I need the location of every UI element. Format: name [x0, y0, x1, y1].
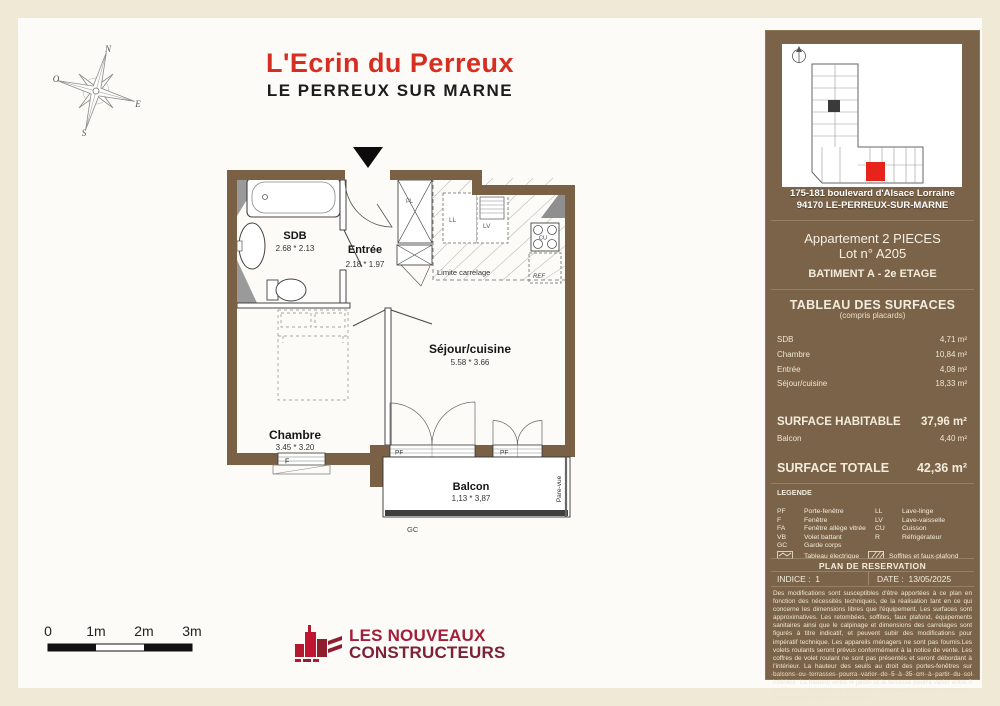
date-value: 13/05/2025: [909, 574, 952, 584]
divider: [771, 558, 974, 559]
surface-row: Entrée4,08 m²: [777, 365, 967, 374]
compass-s-label: S: [82, 128, 87, 138]
compass-rose-icon: N O E S: [45, 35, 155, 145]
bed-outline: [278, 310, 348, 400]
bathtub: [247, 178, 340, 217]
title-block: L'Ecrin du Perreux LE PERREUX SUR MARNE: [240, 48, 540, 101]
date-label: DATE :: [877, 574, 904, 584]
scale-2m-label: 2m: [134, 623, 153, 639]
logo-line1: LES NOUVEAUX: [349, 627, 506, 644]
porte-fenetres: [390, 402, 542, 457]
surfaces-title: TABLEAU DES SURFACES: [765, 298, 980, 312]
habitable-value: 37,96 m²: [921, 416, 967, 428]
entrance-arrow-icon: [353, 147, 383, 168]
entree-room-label: Entrée: [348, 244, 382, 256]
indice-row: INDICE : 1: [777, 574, 820, 584]
surfaces-subtitle: (compris placards): [765, 311, 980, 320]
row-value: 18,33 m²: [935, 379, 967, 388]
scale-1m-label: 1m: [86, 623, 105, 639]
scale-0-label: 0: [44, 623, 52, 639]
indice-label: INDICE :: [777, 574, 811, 584]
builder-logo-text: LES NOUVEAUX CONSTRUCTEURS: [349, 627, 506, 661]
plan-reservation-title: PLAN DE RESERVATION: [765, 561, 980, 571]
divider: [771, 220, 974, 221]
toilet-bowl: [276, 279, 306, 301]
builder-logo: LES NOUVEAUX CONSTRUCTEURS: [293, 622, 523, 666]
apartment-type: Appartement 2 PIECES: [765, 231, 980, 246]
sdb-room-label: SDB: [283, 230, 306, 242]
legend-abbr: R: [875, 534, 902, 541]
window-f-label: F: [285, 459, 289, 466]
surface-row: Chambre10,84 m²: [777, 350, 967, 359]
divider: [771, 674, 974, 675]
mini-north-icon: [793, 46, 806, 63]
balcon-label: Balcon: [777, 434, 801, 443]
logo-line2: CONSTRUCTEURS: [349, 644, 506, 661]
compass-e-label: E: [134, 99, 141, 109]
entrance-door-arc: [345, 180, 392, 227]
pf1-label: PF: [395, 450, 403, 457]
row-label: Entrée: [777, 365, 801, 374]
row-value: 4,71 m²: [940, 335, 967, 344]
cu-label: CU: [539, 236, 547, 242]
surface-totale-row: SURFACE TOTALE42,36 m²: [777, 461, 967, 475]
divider: [771, 586, 974, 587]
legend-title: LEGENDE: [777, 488, 812, 497]
totale-value: 42,36 m²: [917, 461, 967, 475]
scale-bar: 0 1m 2m 3m: [40, 620, 210, 662]
balcon-room-label: Balcon: [453, 481, 490, 493]
address-line1: 175-181 boulevard d'Alsace Lorraine: [765, 188, 980, 200]
compass-n-label: N: [104, 44, 112, 54]
sdb-room-dims: 2.68 * 2.13: [276, 244, 315, 253]
sejour-room-dims: 5.58 * 3.66: [451, 358, 490, 367]
info-sidebar: 175-181 boulevard d'Alsace Lorraine 9417…: [765, 30, 980, 680]
floor-plan: PL LL LV CU REF Limite carrelage: [225, 140, 575, 538]
builder-logo-icon: [293, 622, 343, 666]
row-label: SDB: [777, 335, 793, 344]
pf2-label: PF: [500, 450, 508, 457]
partitions: [237, 180, 391, 445]
divider: [771, 571, 974, 572]
pl-label: PL: [406, 199, 414, 205]
lv-label: LV: [483, 223, 491, 230]
legend-label: Réfrigérateur: [902, 534, 942, 541]
divider: [771, 289, 974, 290]
surface-habitable-row: SURFACE HABITABLE37,96 m²: [777, 416, 967, 428]
lot-number: Lot n° A205: [765, 246, 980, 261]
divider: [771, 483, 974, 484]
indice-value: 1: [815, 574, 820, 584]
building-floor: BATIMENT A - 2e ETAGE: [765, 268, 980, 280]
date-row: DATE : 13/05/2025: [877, 574, 951, 584]
habitable-label: SURFACE HABITABLE: [777, 416, 901, 428]
legend-item: RRéfrigérateur: [875, 526, 942, 544]
row-value: 10,84 m²: [935, 350, 967, 359]
limite-carrelage-label: Limite carrelage: [437, 268, 490, 277]
washbasin: [239, 223, 265, 269]
chambre-room-label: Chambre: [269, 428, 321, 442]
entree-room-dims: 2.18 * 1.97: [346, 260, 385, 269]
chambre-room-dims: 3.45 * 3.20: [276, 443, 315, 452]
chambre-window: [273, 453, 330, 474]
ll-label: LL: [449, 217, 457, 224]
row-label: Chambre: [777, 350, 810, 359]
entry-closet: [397, 180, 432, 286]
sejour-room-label: Séjour/cuisine: [429, 342, 511, 356]
row-value: 4,08 m²: [940, 365, 967, 374]
core-block: [828, 100, 840, 112]
address-line2: 94170 LE-PERREUX-SUR-MARNE: [765, 200, 980, 212]
compass-o-label: O: [53, 74, 60, 84]
ref-label: REF: [533, 274, 545, 280]
divider-vertical: [868, 572, 869, 585]
project-city: LE PERREUX SUR MARNE: [240, 81, 540, 101]
totale-label: SURFACE TOTALE: [777, 461, 889, 475]
balcon-room-dims: 1,13 * 3,87: [452, 494, 491, 503]
site-mini-plan: [782, 44, 962, 187]
balcon-row: Balcon4,40 m²: [777, 434, 967, 443]
scale-3m-label: 3m: [182, 623, 201, 639]
lot-highlight: [866, 162, 885, 181]
row-label: Séjour/cuisine: [777, 379, 827, 388]
surface-row: SDB4,71 m²: [777, 335, 967, 344]
project-title: L'Ecrin du Perreux: [240, 48, 540, 79]
gc-label: GC: [407, 525, 419, 534]
disclaimer-text: Des modifications sont susceptibles d'êt…: [773, 590, 972, 703]
surface-row: Séjour/cuisine18,33 m²: [777, 379, 967, 388]
balcon-value: 4,40 m²: [940, 434, 967, 443]
pare-vue-label: Pare-vue: [556, 475, 563, 502]
